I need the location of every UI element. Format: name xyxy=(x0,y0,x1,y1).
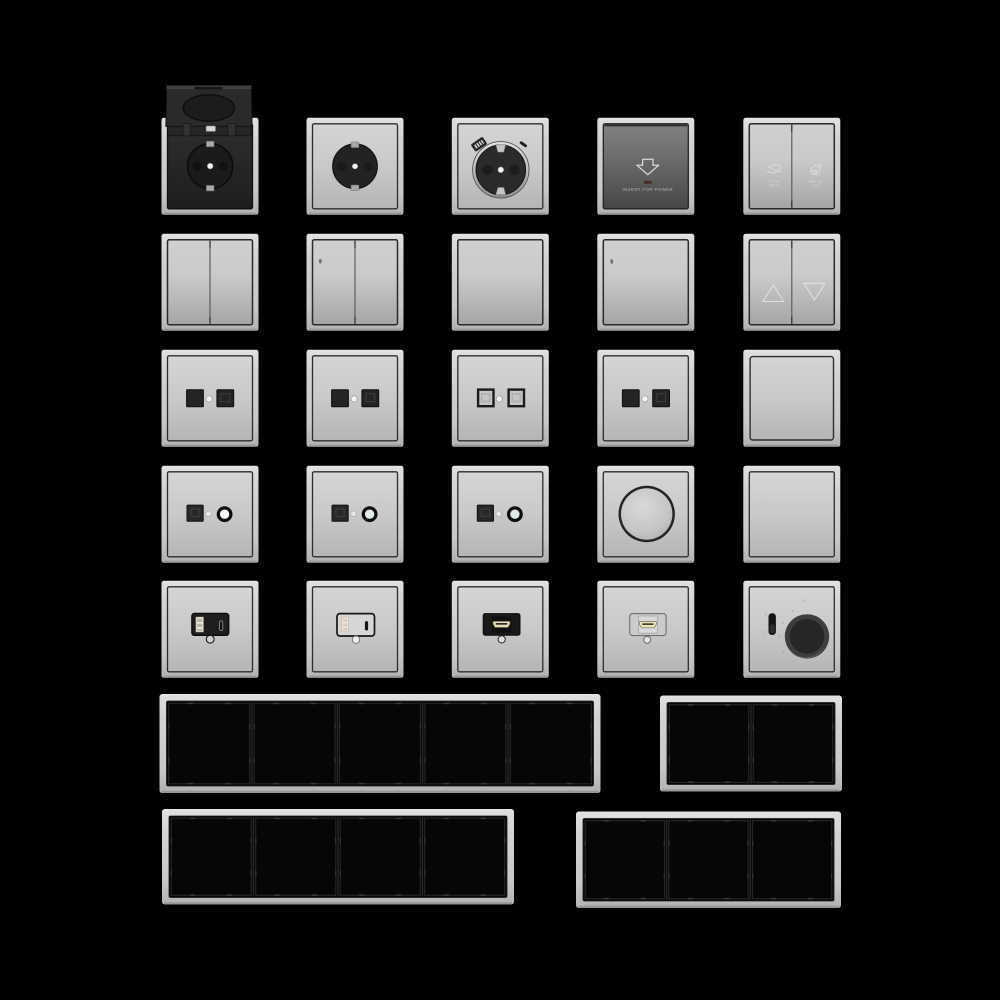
svg-text:4: 4 xyxy=(782,621,784,625)
svg-text:room: room xyxy=(812,184,820,188)
svg-text:3: 3 xyxy=(778,634,780,638)
svg-text:6: 6 xyxy=(804,599,806,603)
svg-text:0: 0 xyxy=(764,630,766,634)
svg-text:2: 2 xyxy=(782,650,784,654)
svg-text:INSERT FOR POWER: INSERT FOR POWER xyxy=(622,187,673,192)
svg-text:1: 1 xyxy=(765,613,767,617)
svg-text:.: . xyxy=(811,600,812,604)
svg-text:5: 5 xyxy=(792,609,794,613)
svg-text:disturb: disturb xyxy=(769,184,779,188)
